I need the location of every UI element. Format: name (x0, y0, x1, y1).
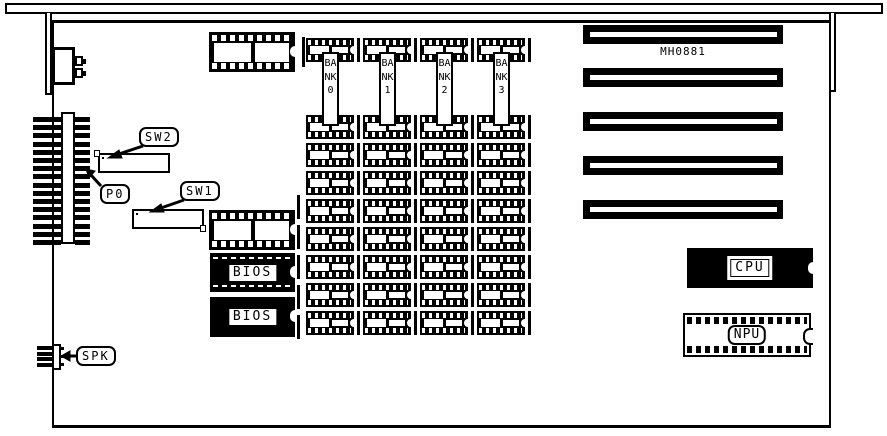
sw2-position-1-off (102, 157, 104, 159)
p0-connector-body (61, 112, 75, 244)
cpu-chip-label: CPU (730, 259, 769, 277)
sw1-position-8-off (136, 213, 138, 215)
p0-pin-right (75, 158, 90, 163)
p0-pin-left (33, 174, 61, 179)
p0-pin-left (33, 191, 61, 196)
p0-pin-left (33, 150, 61, 155)
capacitor-bar (528, 255, 531, 279)
capacitor-bar (297, 285, 300, 309)
capacitor-bar (357, 199, 360, 223)
p0-pin-left (33, 125, 61, 130)
memory-chip-bank1-7 (363, 255, 411, 279)
p0-pin-right (75, 199, 90, 204)
npu-chip-label: NPU (728, 325, 766, 345)
capacitor-bar (357, 143, 360, 167)
expansion-slot-stripe (590, 119, 777, 124)
p0-pin-left (33, 142, 61, 147)
dip-socket-top (209, 32, 295, 72)
keyboard-connector-nub (83, 59, 86, 64)
memory-chip-bank3-7 (477, 255, 525, 279)
capacitor-bar (302, 37, 305, 67)
bank1-label: BANK1 (379, 52, 396, 126)
capacitor-bar (471, 283, 474, 307)
sw1-orientation-mark (200, 225, 206, 232)
p0-pin-right (75, 117, 90, 122)
bios-chip-2: BIOS (210, 297, 295, 337)
keyboard-connector (52, 47, 75, 85)
expansion-slot-stripe (590, 75, 777, 80)
npu-socket: NPU (683, 313, 811, 357)
memory-chip-bank0-8 (306, 283, 354, 307)
expansion-slot-4 (583, 156, 783, 175)
capacitor-bar (357, 227, 360, 251)
expansion-slot-stripe (590, 32, 777, 37)
p0-pin-right (75, 215, 90, 220)
memory-chip-bank0-5 (306, 199, 354, 223)
memory-chip-bank2-7 (420, 255, 468, 279)
p0-pin-right (75, 150, 90, 155)
expansion-slot-stripe (590, 163, 777, 168)
p0-pin-right (75, 166, 90, 171)
p0-pin-left (33, 183, 61, 188)
memory-chip-bank0-9 (306, 311, 354, 335)
capacitor-bar (528, 143, 531, 167)
p0-pin-left (33, 199, 61, 204)
capacitor-bar (471, 143, 474, 167)
spk-pin (37, 346, 52, 350)
capacitor-bar (471, 255, 474, 279)
dip-switch-sw2 (98, 153, 170, 173)
p0-pin-right (75, 125, 90, 130)
keyboard-connector-tab (75, 56, 83, 66)
bracket-hanger-right (829, 13, 836, 92)
p0-pin-right (75, 240, 90, 245)
cpu-chip: CPU (687, 248, 813, 288)
memory-chip-bank3-4 (477, 171, 525, 195)
capacitor-bar (357, 171, 360, 195)
memory-chip-bank1-8 (363, 283, 411, 307)
capacitor-bar (528, 283, 531, 307)
spk-tick (61, 363, 64, 366)
expansion-slot-2 (583, 68, 783, 87)
bracket-hanger-left (45, 13, 52, 95)
capacitor-bar (471, 115, 474, 139)
capacitor-bar (471, 171, 474, 195)
capacitor-bar (414, 115, 417, 139)
memory-chip-bank1-6 (363, 227, 411, 251)
sw2-orientation-mark (94, 150, 100, 157)
bios-chip-1-label: BIOS (229, 265, 276, 281)
p0-pin-right (75, 174, 90, 179)
expansion-slot-stripe (590, 207, 777, 212)
dip-socket-mid (209, 210, 295, 250)
bios-chip-1: BIOS (210, 253, 295, 292)
dip-switch-sw1 (132, 209, 204, 229)
p0-pin-right (75, 142, 90, 147)
capacitor-bar (357, 38, 360, 62)
capacitor-bar (357, 255, 360, 279)
capacitor-bar (528, 311, 531, 335)
spk-pin (37, 352, 52, 356)
expansion-slot-5 (583, 200, 783, 219)
spk-pin (37, 363, 52, 367)
capacitor-bar (414, 38, 417, 62)
spk-pin (37, 357, 52, 361)
memory-chip-bank2-3 (420, 143, 468, 167)
spk-tick (61, 355, 64, 358)
p0-pin-right (75, 183, 90, 188)
board-model-text: MH0881 (583, 45, 783, 59)
expansion-slot-1 (583, 25, 783, 44)
memory-chip-bank3-3 (477, 143, 525, 167)
capacitor-bar (414, 143, 417, 167)
capacitor-bar (528, 171, 531, 195)
capacitor-bar (471, 311, 474, 335)
memory-chip-bank0-3 (306, 143, 354, 167)
memory-chip-bank2-8 (420, 283, 468, 307)
p0-callout-label: P0 (100, 184, 130, 204)
spk-callout-label: SPK (76, 346, 116, 366)
bank3-label: BANK3 (493, 52, 510, 126)
p0-pin-left (33, 133, 61, 138)
memory-chip-bank2-6 (420, 227, 468, 251)
p0-pin-left (33, 240, 61, 245)
capacitor-bar (414, 311, 417, 335)
bios-chip-2-label: BIOS (229, 309, 276, 325)
memory-chip-bank3-6 (477, 227, 525, 251)
memory-chip-bank0-6 (306, 227, 354, 251)
capacitor-bar (297, 225, 300, 249)
bank2-label: BANK2 (436, 52, 453, 126)
p0-pin-left (33, 158, 61, 163)
mounting-bracket-bar (5, 3, 883, 14)
memory-chip-bank1-5 (363, 199, 411, 223)
memory-chip-bank2-4 (420, 171, 468, 195)
capacitor-bar (357, 311, 360, 335)
speaker-header-body (52, 344, 61, 370)
memory-chip-bank1-9 (363, 311, 411, 335)
p0-pin-right (75, 207, 90, 212)
sw1-callout-label: SW1 (180, 181, 220, 201)
p0-pin-left (33, 207, 61, 212)
capacitor-bar (528, 227, 531, 251)
keyboard-connector-tab (75, 68, 83, 78)
p0-pin-right (75, 191, 90, 196)
p0-pin-left (33, 117, 61, 122)
capacitor-bar (528, 115, 531, 139)
memory-chip-bank2-5 (420, 199, 468, 223)
memory-chip-bank0-7 (306, 255, 354, 279)
memory-chip-bank3-8 (477, 283, 525, 307)
memory-chip-bank1-4 (363, 171, 411, 195)
sw2-callout-label: SW2 (139, 127, 179, 147)
memory-chip-bank1-3 (363, 143, 411, 167)
capacitor-bar (471, 38, 474, 62)
p0-pin-left (33, 215, 61, 220)
memory-chip-bank3-9 (477, 311, 525, 335)
capacitor-bar (414, 255, 417, 279)
memory-chip-bank3-5 (477, 199, 525, 223)
capacitor-bar (357, 115, 360, 139)
p0-pin-left (33, 232, 61, 237)
capacitor-bar (528, 199, 531, 223)
capacitor-bar (471, 199, 474, 223)
keyboard-connector-nub (83, 71, 86, 76)
capacitor-bar (414, 283, 417, 307)
p0-pin-left (33, 166, 61, 171)
memory-chip-bank2-9 (420, 311, 468, 335)
expansion-slot-3 (583, 112, 783, 131)
spk-tick (61, 347, 64, 350)
p0-pin-right (75, 133, 90, 138)
capacitor-bar (297, 195, 300, 219)
motherboard-diagram: P0 SW2 SW1 SPK BIOS BIOS BANK0 BANK1 BAN… (0, 0, 887, 436)
capacitor-bar (471, 227, 474, 251)
capacitor-bar (414, 199, 417, 223)
p0-pin-right (75, 232, 90, 237)
capacitor-bar (357, 283, 360, 307)
bank0-label: BANK0 (322, 52, 339, 126)
p0-pin-right (75, 224, 90, 229)
capacitor-bar (414, 227, 417, 251)
p0-pin-left (33, 224, 61, 229)
memory-chip-bank0-4 (306, 171, 354, 195)
capacitor-bar (414, 171, 417, 195)
capacitor-bar (528, 38, 531, 62)
capacitor-bar (297, 255, 300, 279)
capacitor-bar (297, 315, 300, 339)
